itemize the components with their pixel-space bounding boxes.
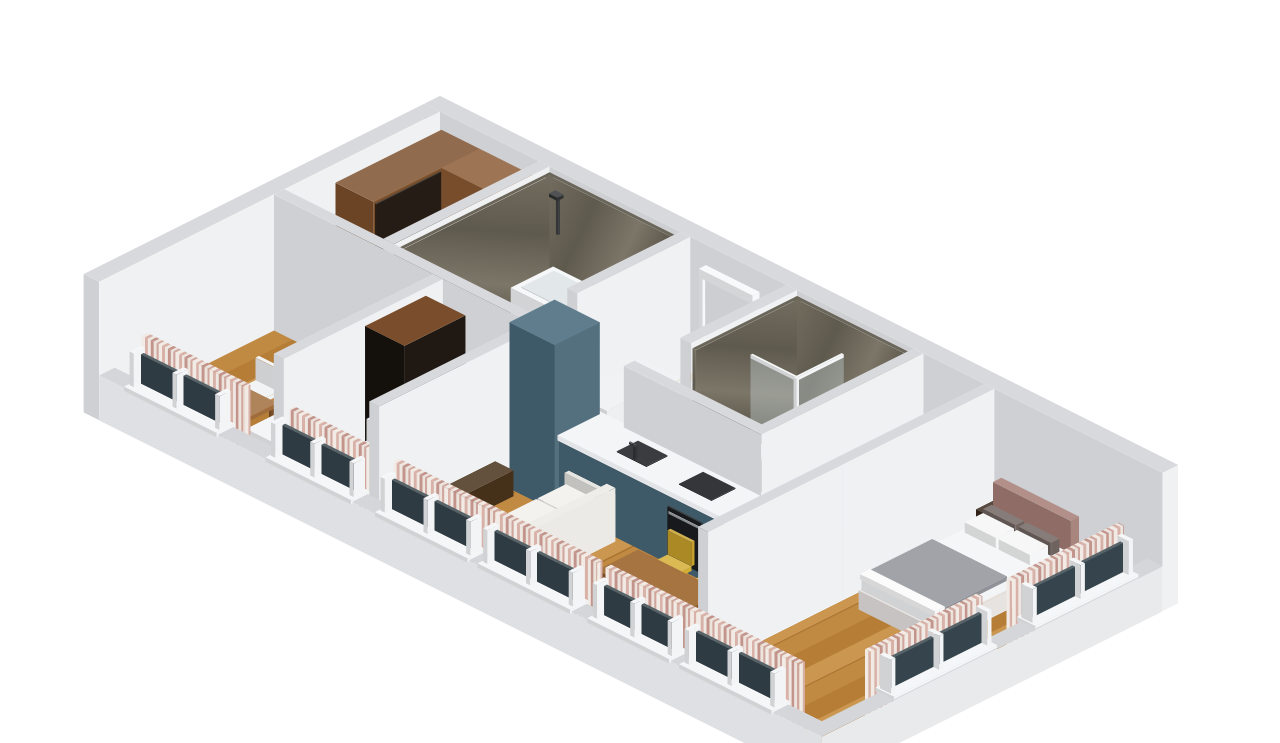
- floor-plan-render: [0, 0, 1280, 743]
